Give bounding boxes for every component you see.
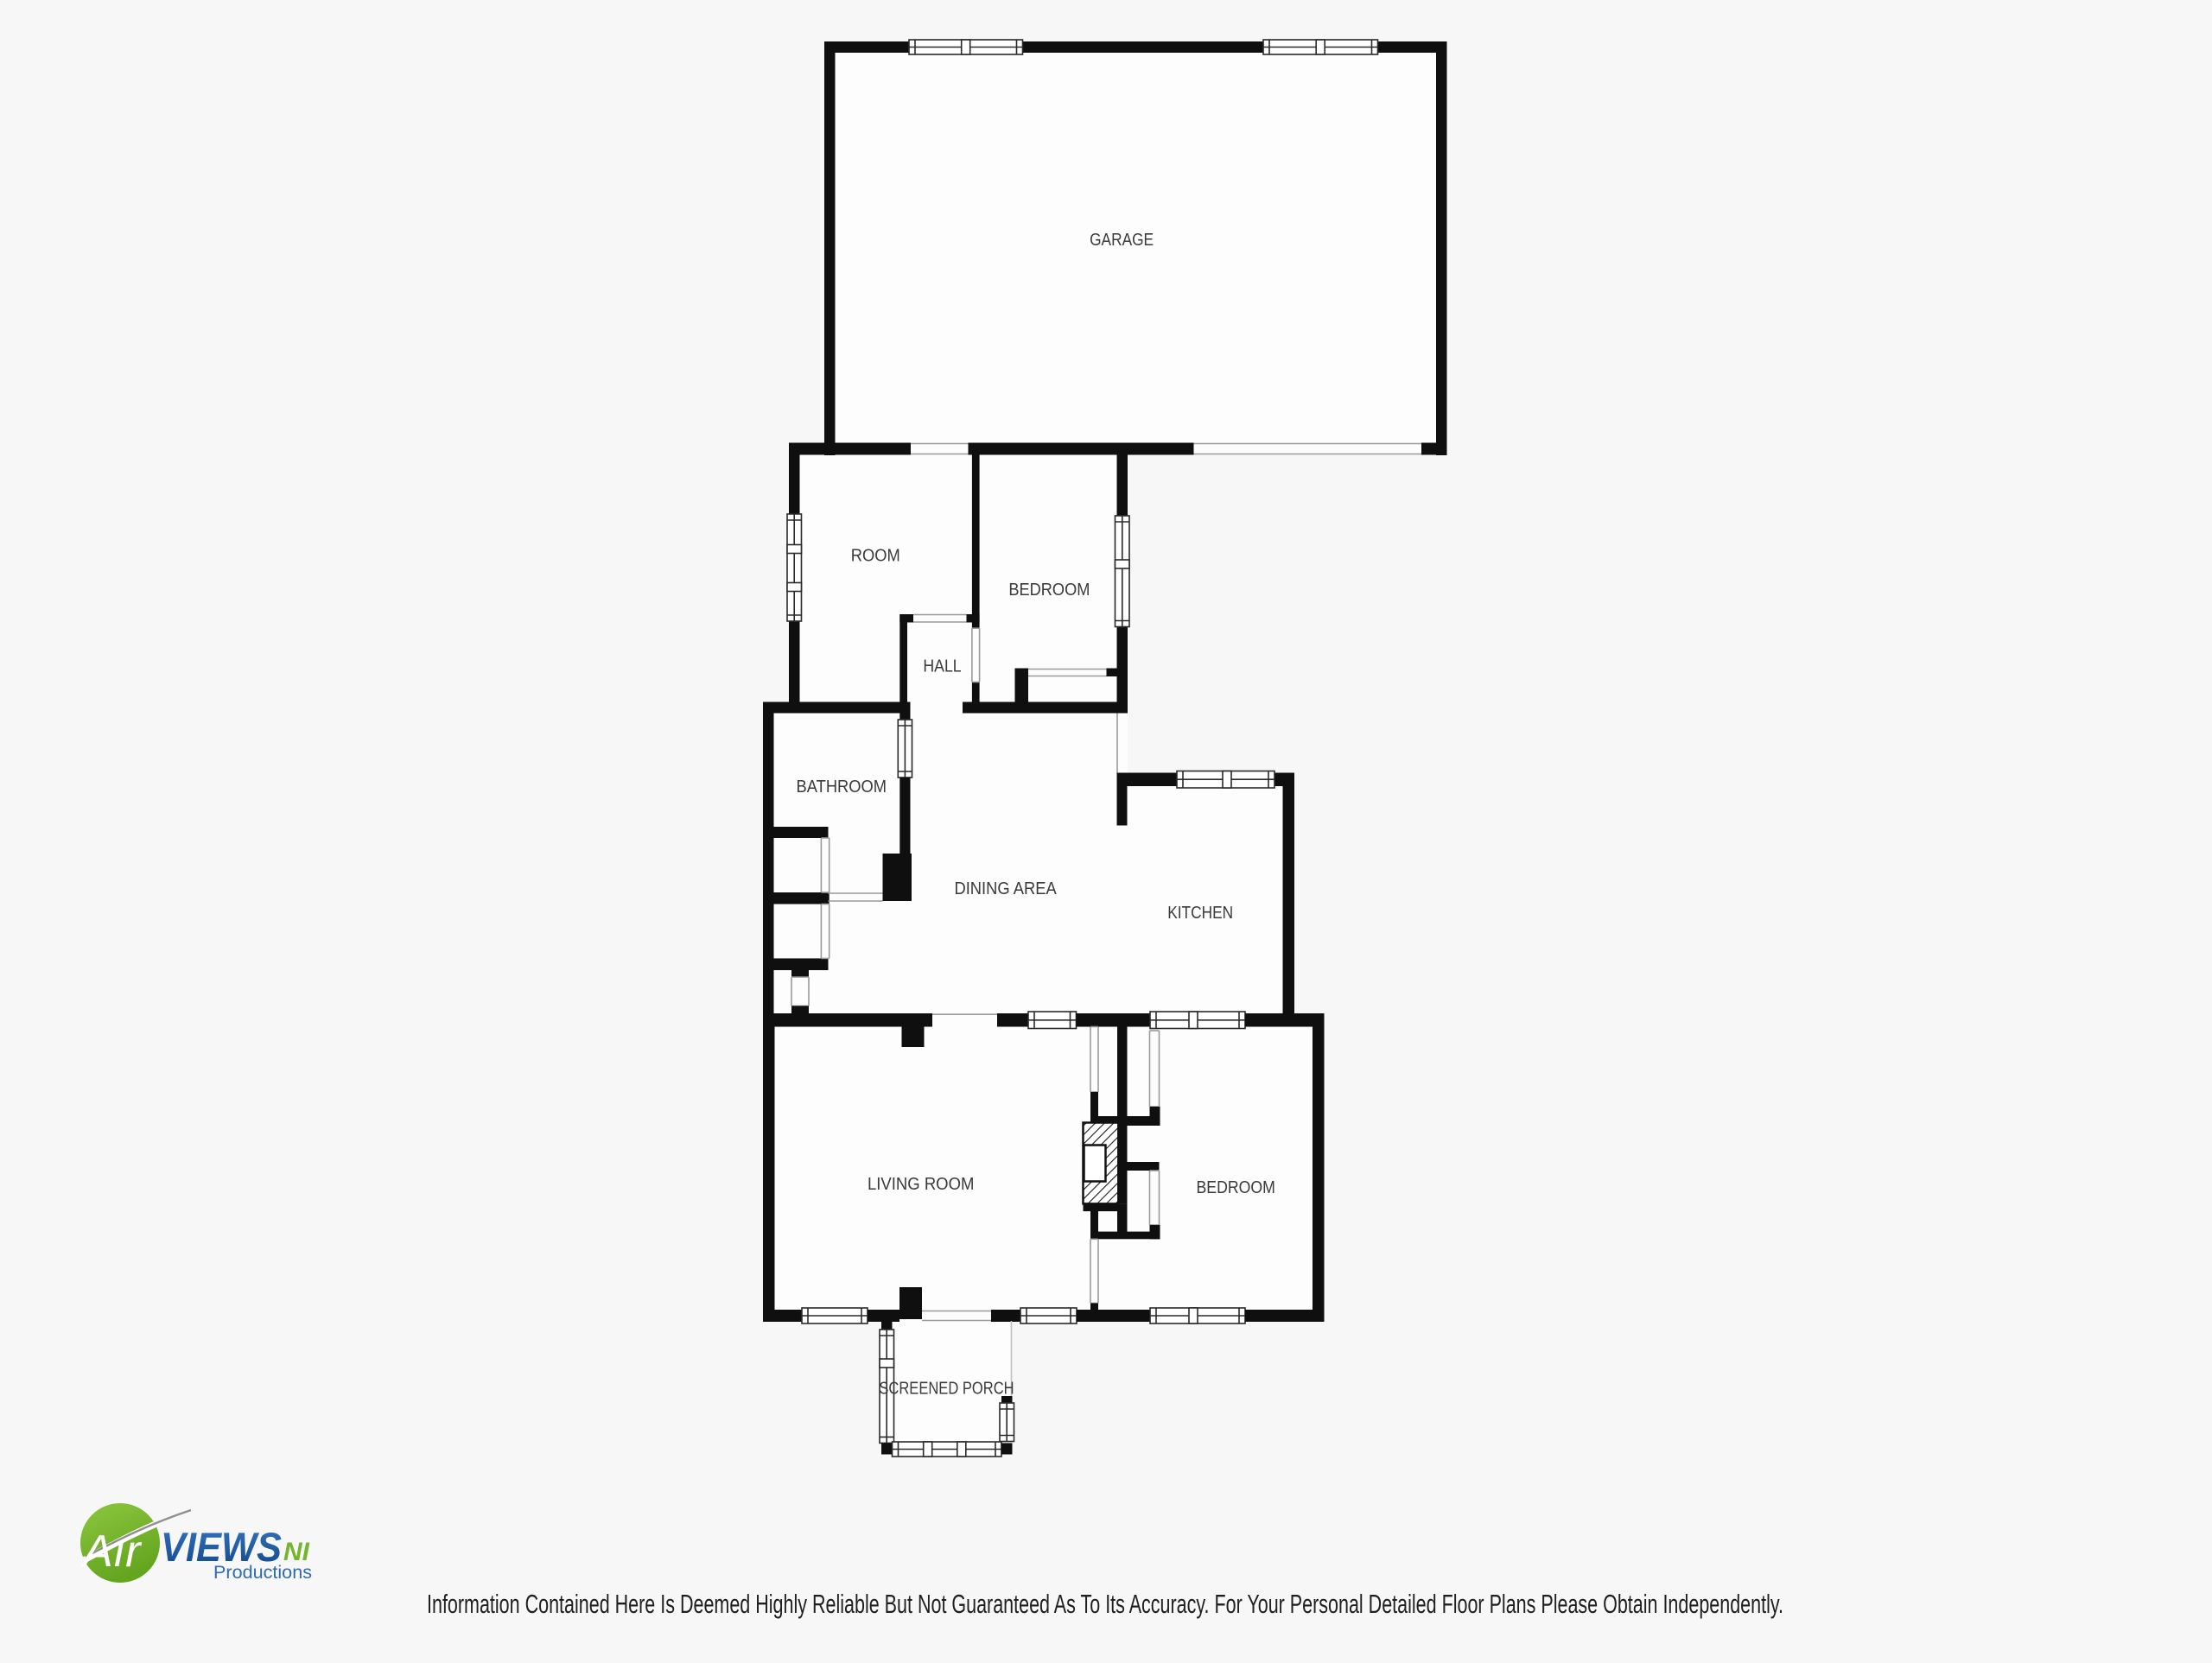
svg-text:Productions: Productions <box>213 1563 312 1583</box>
svg-text:BEDROOM: BEDROOM <box>1197 1178 1275 1197</box>
svg-text:BEDROOM: BEDROOM <box>1008 581 1090 600</box>
svg-text:SCREENED PORCH: SCREENED PORCH <box>879 1379 1014 1398</box>
svg-text:KITCHEN: KITCHEN <box>1167 904 1233 923</box>
svg-text:HALL: HALL <box>923 657 961 676</box>
svg-text:ROOM: ROOM <box>851 547 900 566</box>
svg-text:LIVING ROOM: LIVING ROOM <box>868 1175 974 1194</box>
svg-text:GARAGE: GARAGE <box>1090 231 1154 250</box>
svg-text:DINING AREA: DINING AREA <box>954 879 1057 898</box>
svg-text:Aır: Aır <box>80 1527 143 1577</box>
svg-text:Information Contained Here Is: Information Contained Here Is Deemed Hig… <box>427 1589 1783 1619</box>
svg-text:BATHROOM: BATHROOM <box>797 778 887 797</box>
